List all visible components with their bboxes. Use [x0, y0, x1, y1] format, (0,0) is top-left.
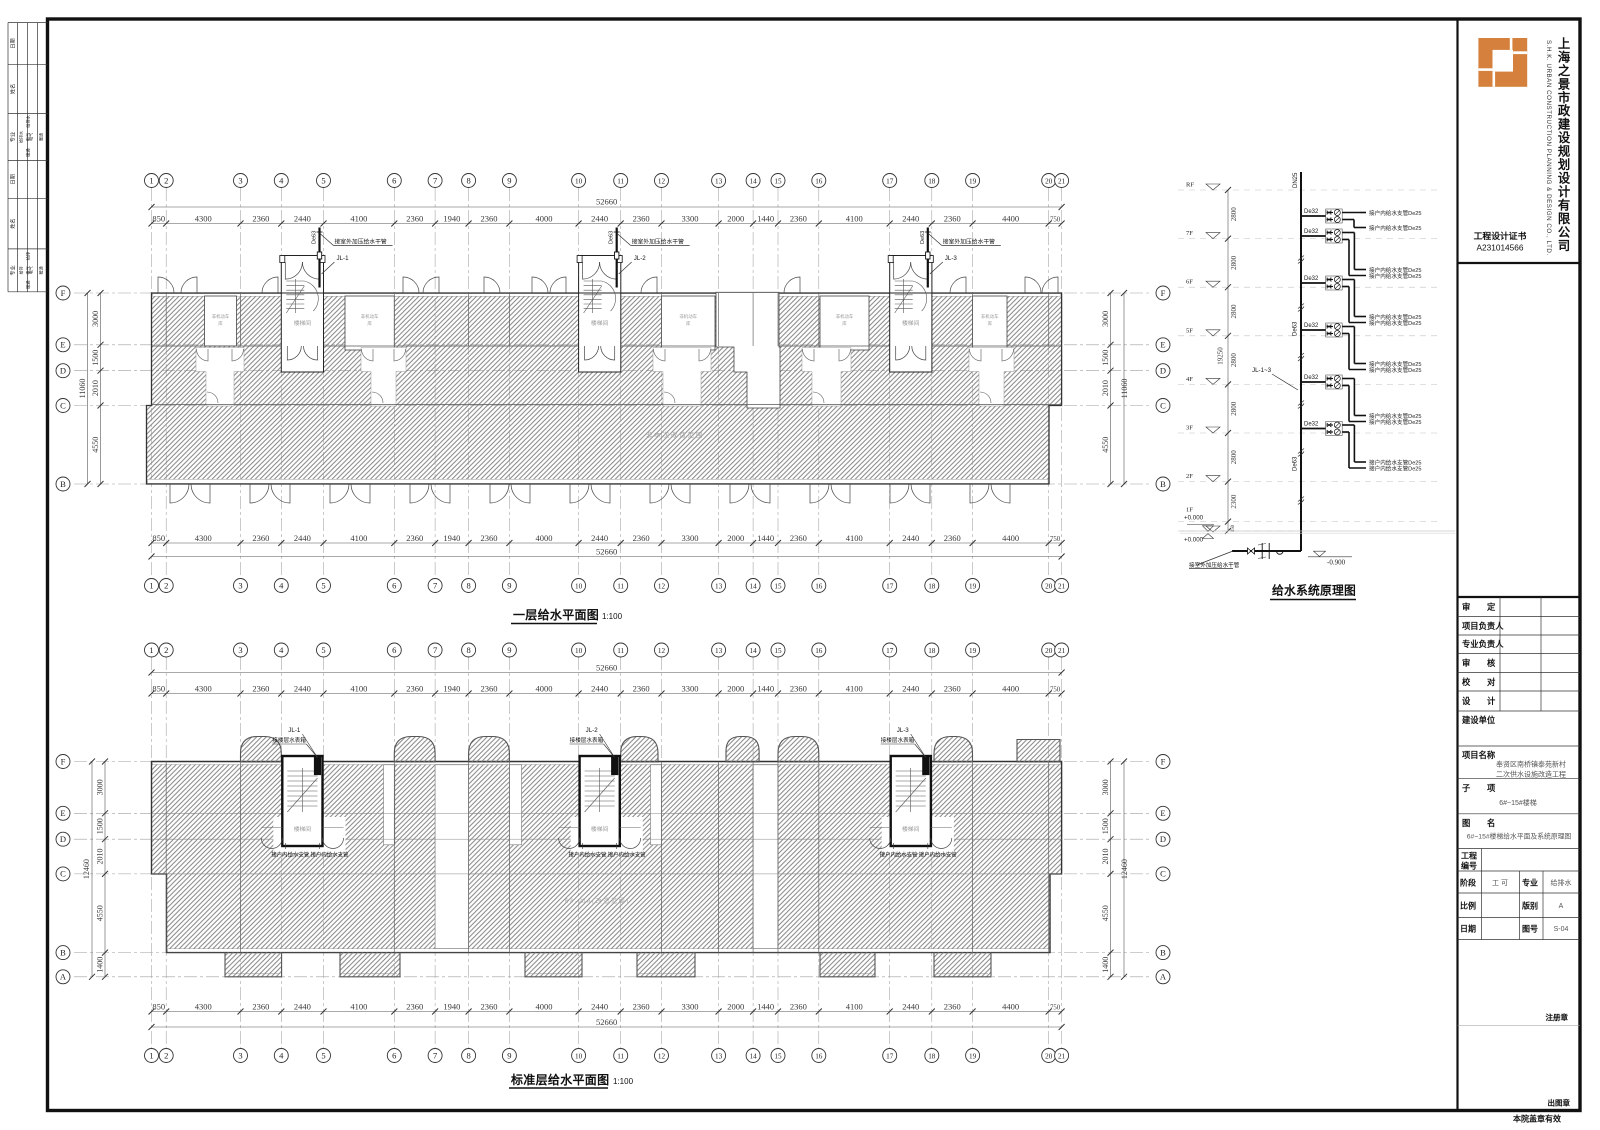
svg-text:版别: 版别	[1521, 901, 1538, 911]
svg-text:楼梯间: 楼梯间	[902, 319, 920, 327]
svg-text:1440: 1440	[757, 533, 774, 543]
svg-text:E: E	[1160, 340, 1165, 350]
svg-text:4550: 4550	[96, 905, 105, 921]
svg-text:给排水: 给排水	[1551, 878, 1572, 887]
svg-text:10: 10	[575, 177, 583, 185]
svg-text:接户内给水支管De25: 接户内给水支管De25	[1369, 266, 1422, 274]
svg-text:14: 14	[750, 647, 758, 655]
svg-text:1500: 1500	[1101, 350, 1110, 366]
svg-text:A: A	[60, 972, 67, 982]
svg-text:750: 750	[1050, 686, 1061, 693]
svg-text:13: 13	[715, 177, 723, 185]
svg-text:上: 上	[1558, 36, 1570, 51]
svg-text:850: 850	[152, 533, 165, 543]
svg-text:JL-1: JL-1	[337, 255, 350, 262]
svg-text:4: 4	[279, 1050, 284, 1060]
svg-text:12: 12	[658, 1052, 666, 1060]
svg-text:DN25: DN25	[1293, 172, 1299, 188]
svg-text:2360: 2360	[252, 683, 269, 693]
svg-text:4300: 4300	[195, 1001, 212, 1011]
svg-text:19: 19	[969, 177, 977, 185]
svg-text:2440: 2440	[294, 683, 311, 693]
svg-text:De32: De32	[1304, 229, 1319, 235]
svg-text:给排: 给排	[25, 251, 32, 260]
svg-text:15: 15	[774, 177, 782, 185]
svg-text:6 # - 20 # ( 改 造 范 围 ): 6 # - 20 # ( 改 造 范 围 )	[565, 897, 628, 905]
svg-text:给排水: 给排水	[18, 131, 24, 143]
svg-text:2010: 2010	[1101, 849, 1110, 865]
svg-text:2010: 2010	[1101, 380, 1110, 396]
svg-text:D: D	[60, 366, 66, 376]
svg-text:850: 850	[152, 1001, 165, 1011]
svg-text:7: 7	[433, 645, 437, 655]
svg-text:2300: 2300	[1230, 494, 1238, 509]
svg-text:7: 7	[433, 580, 437, 590]
svg-text:定: 定	[1487, 602, 1496, 612]
svg-text:4: 4	[279, 175, 284, 185]
svg-text:4100: 4100	[846, 1001, 863, 1011]
svg-text:2360: 2360	[252, 213, 269, 223]
svg-text:2360: 2360	[944, 1001, 961, 1011]
svg-text:标准层给水平面图: 标准层给水平面图	[510, 1072, 609, 1087]
svg-text:2: 2	[164, 645, 168, 655]
svg-text:市: 市	[1558, 90, 1570, 105]
svg-text:18: 18	[928, 177, 936, 185]
svg-text:库: 库	[367, 320, 372, 327]
svg-text:15: 15	[774, 1052, 782, 1060]
svg-text:De63: De63	[312, 231, 318, 244]
svg-text:2: 2	[164, 1050, 168, 1060]
svg-text:De63: De63	[1293, 321, 1299, 336]
svg-text:给水系统原理图: 给水系统原理图	[1272, 584, 1356, 598]
svg-text:比例: 比例	[1460, 901, 1476, 911]
svg-text:De32: De32	[1304, 375, 1319, 381]
svg-text:暖通: 暖通	[25, 148, 32, 157]
svg-text:4: 4	[279, 645, 284, 655]
svg-text:9: 9	[507, 645, 511, 655]
svg-text:De63: De63	[609, 231, 615, 244]
svg-text:A: A	[1160, 972, 1167, 982]
svg-text:2440: 2440	[591, 683, 608, 693]
svg-text:建设单位: 建设单位	[1461, 715, 1496, 725]
svg-text:接户内给水支管De25: 接户内给水支管De25	[1369, 319, 1422, 327]
svg-text:2360: 2360	[790, 683, 807, 693]
svg-text:2440: 2440	[591, 533, 608, 543]
svg-text:4: 4	[279, 580, 284, 590]
svg-text:11: 11	[617, 582, 624, 590]
svg-text:2360: 2360	[944, 213, 961, 223]
svg-text:非机动车: 非机动车	[836, 313, 854, 320]
svg-text:2360: 2360	[944, 683, 961, 693]
svg-text:姓名: 姓名	[9, 84, 17, 94]
svg-text:13: 13	[715, 1052, 723, 1060]
svg-text:De32: De32	[1304, 276, 1319, 282]
svg-text:S.H.K. URBAN CONSTRUCTION PLAN: S.H.K. URBAN CONSTRUCTION PLANNING & DES…	[1545, 40, 1552, 256]
svg-text:3000: 3000	[1101, 311, 1110, 327]
svg-text:2360: 2360	[481, 213, 498, 223]
svg-text:2: 2	[164, 175, 168, 185]
svg-text:接室外加压给水干管: 接室外加压给水干管	[335, 238, 387, 246]
svg-text:21: 21	[1058, 582, 1066, 590]
svg-text:4000: 4000	[536, 683, 553, 693]
svg-text:JL-2: JL-2	[634, 255, 647, 262]
svg-text:7: 7	[433, 1050, 437, 1060]
svg-text:1: 1	[149, 645, 153, 655]
svg-text:名: 名	[1487, 818, 1495, 828]
svg-text:司: 司	[1558, 239, 1570, 253]
svg-text:核: 核	[1487, 658, 1496, 668]
svg-text:12: 12	[658, 647, 666, 655]
svg-text:之: 之	[1558, 63, 1571, 78]
svg-text:6: 6	[392, 645, 396, 655]
svg-text:18: 18	[928, 582, 936, 590]
svg-text:限: 限	[1558, 211, 1571, 226]
svg-text:2000: 2000	[727, 213, 744, 223]
svg-text:4000: 4000	[536, 533, 553, 543]
svg-text:JL-3: JL-3	[945, 255, 958, 262]
svg-text:4000: 4000	[536, 213, 553, 223]
svg-text:1440: 1440	[757, 213, 774, 223]
svg-text:+0.000: +0.000	[1184, 515, 1204, 522]
svg-text:E: E	[60, 340, 65, 350]
svg-text:2360: 2360	[406, 1001, 423, 1011]
svg-text:子: 子	[1462, 783, 1471, 793]
svg-text:2360: 2360	[790, 533, 807, 543]
svg-text:库: 库	[218, 320, 223, 327]
svg-text:3300: 3300	[682, 213, 699, 223]
svg-text:3000: 3000	[96, 779, 105, 795]
svg-text:17: 17	[886, 1052, 894, 1060]
svg-text:1: 1	[149, 580, 153, 590]
svg-text:2360: 2360	[633, 1001, 650, 1011]
svg-text:2440: 2440	[902, 1001, 919, 1011]
svg-text:4300: 4300	[195, 683, 212, 693]
svg-text:D: D	[1160, 834, 1166, 844]
svg-text:景: 景	[1558, 77, 1570, 91]
svg-text:库: 库	[842, 320, 847, 327]
svg-text:3: 3	[238, 580, 242, 590]
svg-text:19250: 19250	[1217, 347, 1225, 365]
svg-text:奉贤区南桥镇泰苑新村: 奉贤区南桥镇泰苑新村	[1496, 760, 1566, 769]
svg-text:4400: 4400	[1002, 683, 1019, 693]
svg-text:17: 17	[886, 177, 894, 185]
svg-text:2360: 2360	[481, 1001, 498, 1011]
svg-text:工程设计证书: 工程设计证书	[1474, 230, 1527, 241]
svg-text:2010: 2010	[96, 849, 105, 865]
svg-text:2360: 2360	[944, 533, 961, 543]
svg-text:2360: 2360	[633, 213, 650, 223]
svg-text:7: 7	[433, 175, 437, 185]
svg-text:楼梯间: 楼梯间	[902, 825, 920, 833]
svg-text:850: 850	[152, 683, 165, 693]
svg-text:C: C	[1160, 869, 1166, 879]
svg-text:7F: 7F	[1186, 230, 1193, 237]
svg-text:接楼层水表箱: 接楼层水表箱	[881, 736, 915, 744]
svg-text:2440: 2440	[902, 683, 919, 693]
svg-text:1F: 1F	[1186, 507, 1193, 514]
svg-text:11: 11	[617, 647, 624, 655]
svg-text:3300: 3300	[682, 533, 699, 543]
svg-text:接户内给水支管De25: 接户内给水支管De25	[1369, 412, 1422, 420]
svg-text:2000: 2000	[727, 533, 744, 543]
svg-text:De63: De63	[1293, 456, 1299, 471]
svg-text:审: 审	[1462, 658, 1470, 668]
svg-text:1440: 1440	[757, 1001, 774, 1011]
svg-text:E: E	[1160, 808, 1165, 818]
svg-text:3: 3	[238, 1050, 242, 1060]
svg-text:14: 14	[750, 177, 758, 185]
svg-text:6: 6	[392, 580, 396, 590]
svg-text:项目名称: 项目名称	[1462, 750, 1496, 760]
svg-text:D: D	[1160, 366, 1166, 376]
svg-text:14: 14	[750, 582, 758, 590]
svg-text:5: 5	[321, 580, 325, 590]
svg-text:楼梯间: 楼梯间	[591, 825, 609, 833]
svg-text:设: 设	[1558, 130, 1571, 145]
svg-text:接户内给水支管De25: 接户内给水支管De25	[1369, 459, 1422, 467]
svg-text:C: C	[60, 869, 66, 879]
svg-text:De32: De32	[1304, 422, 1319, 428]
svg-text:9: 9	[507, 175, 511, 185]
svg-text:1:100: 1:100	[613, 1077, 634, 1086]
svg-text:52660: 52660	[596, 662, 617, 672]
svg-text:2440: 2440	[591, 213, 608, 223]
svg-text:16: 16	[815, 1052, 823, 1060]
svg-text:5: 5	[321, 645, 325, 655]
svg-text:2360: 2360	[406, 213, 423, 223]
svg-text:13: 13	[715, 582, 723, 590]
svg-text:1:100: 1:100	[602, 612, 623, 621]
svg-text:JL-1: JL-1	[288, 727, 301, 734]
svg-text:19: 19	[969, 647, 977, 655]
svg-text:6: 6	[392, 175, 396, 185]
svg-text:15: 15	[774, 582, 782, 590]
svg-text:B: B	[60, 947, 66, 957]
svg-text:16: 16	[815, 177, 823, 185]
svg-text:13: 13	[715, 647, 723, 655]
svg-text:接室外加压给水干管: 接室外加压给水干管	[632, 238, 684, 246]
svg-text:4100: 4100	[846, 533, 863, 543]
svg-text:4550: 4550	[1101, 437, 1110, 453]
svg-text:暖通: 暖通	[38, 266, 44, 274]
svg-text:11: 11	[617, 1052, 624, 1060]
svg-text:暖通: 暖通	[25, 280, 32, 289]
svg-text:1940: 1940	[443, 1001, 460, 1011]
svg-text:日期: 日期	[10, 38, 17, 48]
svg-text:4400: 4400	[1002, 533, 1019, 543]
svg-text:4300: 4300	[195, 213, 212, 223]
svg-text:接户内给水支管De25: 接户内给水支管De25	[1369, 224, 1422, 232]
svg-text:1940: 1940	[443, 533, 460, 543]
svg-text:接户内给水支管 接户内给水支管: 接户内给水支管 接户内给水支管	[569, 851, 647, 859]
svg-text:接户内给水支管De25: 接户内给水支管De25	[1369, 465, 1422, 473]
svg-text:项目负责人: 项目负责人	[1462, 621, 1504, 631]
svg-text:2800: 2800	[1230, 207, 1238, 222]
svg-text:接户内给水支管De25: 接户内给水支管De25	[1369, 272, 1422, 280]
svg-text:2440: 2440	[294, 533, 311, 543]
svg-text:1500: 1500	[1101, 818, 1110, 834]
svg-text:2360: 2360	[252, 1001, 269, 1011]
svg-text:4F: 4F	[1186, 376, 1193, 383]
svg-text:专业: 专业	[9, 132, 17, 142]
svg-text:+0.000: +0.000	[1184, 537, 1204, 544]
svg-text:2360: 2360	[481, 533, 498, 543]
svg-text:20: 20	[1045, 647, 1053, 655]
svg-text:4100: 4100	[846, 683, 863, 693]
svg-text:2800: 2800	[1230, 255, 1238, 270]
svg-text:1500: 1500	[91, 350, 100, 366]
svg-text:对: 对	[1487, 677, 1496, 687]
svg-text:有: 有	[1558, 197, 1570, 212]
svg-text:17: 17	[886, 582, 894, 590]
svg-text:12460: 12460	[82, 859, 91, 879]
svg-text:4400: 4400	[1002, 213, 1019, 223]
svg-text:接户内给水支管 接户内给水支管: 接户内给水支管 接户内给水支管	[880, 851, 958, 859]
svg-text:6: 6	[392, 1050, 396, 1060]
svg-text:楼梯间: 楼梯间	[294, 319, 312, 327]
svg-text:图号: 图号	[1522, 925, 1538, 934]
svg-text:3000: 3000	[91, 311, 100, 327]
svg-text:F: F	[1161, 756, 1166, 766]
svg-text:接户内给水支管 接户内给水支管: 接户内给水支管 接户内给水支管	[271, 851, 349, 859]
svg-text:6F: 6F	[1186, 279, 1193, 286]
svg-text:14: 14	[750, 1052, 758, 1060]
svg-text:2800: 2800	[1230, 401, 1238, 416]
svg-text:建: 建	[1558, 117, 1571, 132]
svg-text:3000: 3000	[1101, 779, 1110, 795]
svg-text:2360: 2360	[633, 533, 650, 543]
svg-text:10: 10	[575, 1052, 583, 1060]
svg-text:2: 2	[164, 580, 168, 590]
svg-text:2360: 2360	[790, 1001, 807, 1011]
svg-text:非机动车: 非机动车	[679, 313, 697, 320]
svg-text:16: 16	[815, 647, 823, 655]
svg-text:De32: De32	[1304, 209, 1319, 215]
svg-text:审: 审	[1462, 602, 1470, 612]
svg-text:1: 1	[149, 1050, 153, 1060]
svg-text:4100: 4100	[350, 533, 367, 543]
svg-text:RF: RF	[1186, 182, 1194, 189]
svg-text:库: 库	[686, 320, 691, 327]
svg-text:接户内给水支管De25: 接户内给水支管De25	[1369, 313, 1422, 321]
svg-text:A231014566: A231014566	[1476, 243, 1523, 253]
svg-text:2360: 2360	[406, 533, 423, 543]
svg-text:楼梯间: 楼梯间	[591, 319, 609, 327]
svg-text:12: 12	[658, 582, 666, 590]
svg-text:专业负责人: 专业负责人	[1462, 639, 1504, 649]
svg-text:750: 750	[1050, 216, 1061, 223]
svg-text:本院盖章有效: 本院盖章有效	[1512, 1114, 1561, 1124]
svg-text:姓名: 姓名	[9, 218, 17, 228]
svg-text:校: 校	[1462, 677, 1471, 687]
svg-text:接楼层水表箱: 接楼层水表箱	[272, 736, 306, 744]
svg-text:2800: 2800	[1230, 353, 1238, 368]
svg-text:2000: 2000	[727, 1001, 744, 1011]
svg-text:接户内给水支管De25: 接户内给水支管De25	[1369, 366, 1422, 374]
svg-text:2010: 2010	[91, 380, 100, 396]
svg-text:18: 18	[928, 1052, 936, 1060]
svg-text:12460: 12460	[1120, 859, 1129, 879]
svg-text:52660: 52660	[596, 197, 617, 207]
svg-text:11060: 11060	[78, 379, 87, 399]
svg-text:A: A	[1559, 903, 1564, 910]
svg-text:1400: 1400	[1101, 957, 1110, 973]
svg-text:2440: 2440	[294, 213, 311, 223]
svg-text:日期: 日期	[10, 174, 17, 184]
svg-text:1400: 1400	[96, 957, 105, 973]
svg-text:2440: 2440	[591, 1001, 608, 1011]
svg-text:公: 公	[1558, 225, 1571, 239]
svg-text:2360: 2360	[252, 533, 269, 543]
svg-text:F: F	[61, 288, 66, 298]
svg-text:150: 150	[1231, 524, 1236, 532]
svg-text:一层给水平面图: 一层给水平面图	[513, 607, 599, 622]
svg-text:接户内给水支管De25: 接户内给水支管De25	[1369, 360, 1422, 368]
svg-text:2440: 2440	[902, 533, 919, 543]
svg-text:设: 设	[1462, 696, 1471, 706]
svg-text:计: 计	[1487, 696, 1496, 706]
svg-text:非 本 次 改 造 范 围: 非 本 次 改 造 范 围	[646, 430, 702, 439]
svg-text:2360: 2360	[406, 683, 423, 693]
svg-text:海: 海	[1558, 50, 1571, 65]
svg-text:电气: 电气	[25, 132, 31, 141]
svg-text:8: 8	[466, 645, 470, 655]
svg-text:计: 计	[1558, 184, 1571, 199]
svg-text:9: 9	[507, 580, 511, 590]
svg-text:21: 21	[1058, 1052, 1066, 1060]
svg-text:6#~15#楼梯给水平面及系统原理图: 6#~15#楼梯给水平面及系统原理图	[1467, 832, 1572, 841]
svg-text:2F: 2F	[1186, 473, 1193, 480]
svg-text:F: F	[1161, 288, 1166, 298]
svg-text:2800: 2800	[1230, 304, 1238, 319]
svg-text:11060: 11060	[1120, 379, 1129, 399]
svg-text:De63: De63	[920, 231, 926, 244]
svg-text:2800: 2800	[1230, 450, 1238, 465]
svg-text:8: 8	[466, 1050, 470, 1060]
svg-text:日期: 日期	[1460, 924, 1476, 934]
svg-text:21: 21	[1058, 647, 1066, 655]
svg-text:1: 1	[149, 175, 153, 185]
svg-text:20: 20	[1045, 582, 1053, 590]
svg-text:专业: 专业	[1522, 878, 1538, 888]
svg-text:出图章: 出图章	[1548, 1098, 1571, 1108]
svg-text:图: 图	[1462, 818, 1470, 828]
svg-text:划: 划	[1558, 157, 1570, 172]
svg-text:8: 8	[466, 580, 470, 590]
svg-text:10: 10	[575, 582, 583, 590]
svg-text:4300: 4300	[195, 533, 212, 543]
svg-text:B: B	[60, 479, 66, 489]
svg-text:JL-2: JL-2	[586, 727, 599, 734]
svg-text:8: 8	[466, 175, 470, 185]
svg-text:750: 750	[1050, 536, 1061, 543]
svg-text:3300: 3300	[682, 1001, 699, 1011]
svg-text:3: 3	[238, 175, 242, 185]
svg-text:2360: 2360	[633, 683, 650, 693]
svg-text:4100: 4100	[846, 213, 863, 223]
svg-text:B: B	[1160, 947, 1166, 957]
svg-text:3F: 3F	[1186, 425, 1193, 432]
svg-text:2440: 2440	[294, 1001, 311, 1011]
svg-text:2000: 2000	[727, 683, 744, 693]
svg-text:电气: 电气	[25, 265, 31, 274]
svg-text:20: 20	[1045, 1052, 1053, 1060]
svg-text:项: 项	[1487, 783, 1496, 793]
svg-text:2360: 2360	[790, 213, 807, 223]
svg-text:750: 750	[1050, 1004, 1061, 1011]
svg-text:C: C	[1160, 400, 1166, 410]
svg-text:JL-3: JL-3	[897, 727, 910, 734]
